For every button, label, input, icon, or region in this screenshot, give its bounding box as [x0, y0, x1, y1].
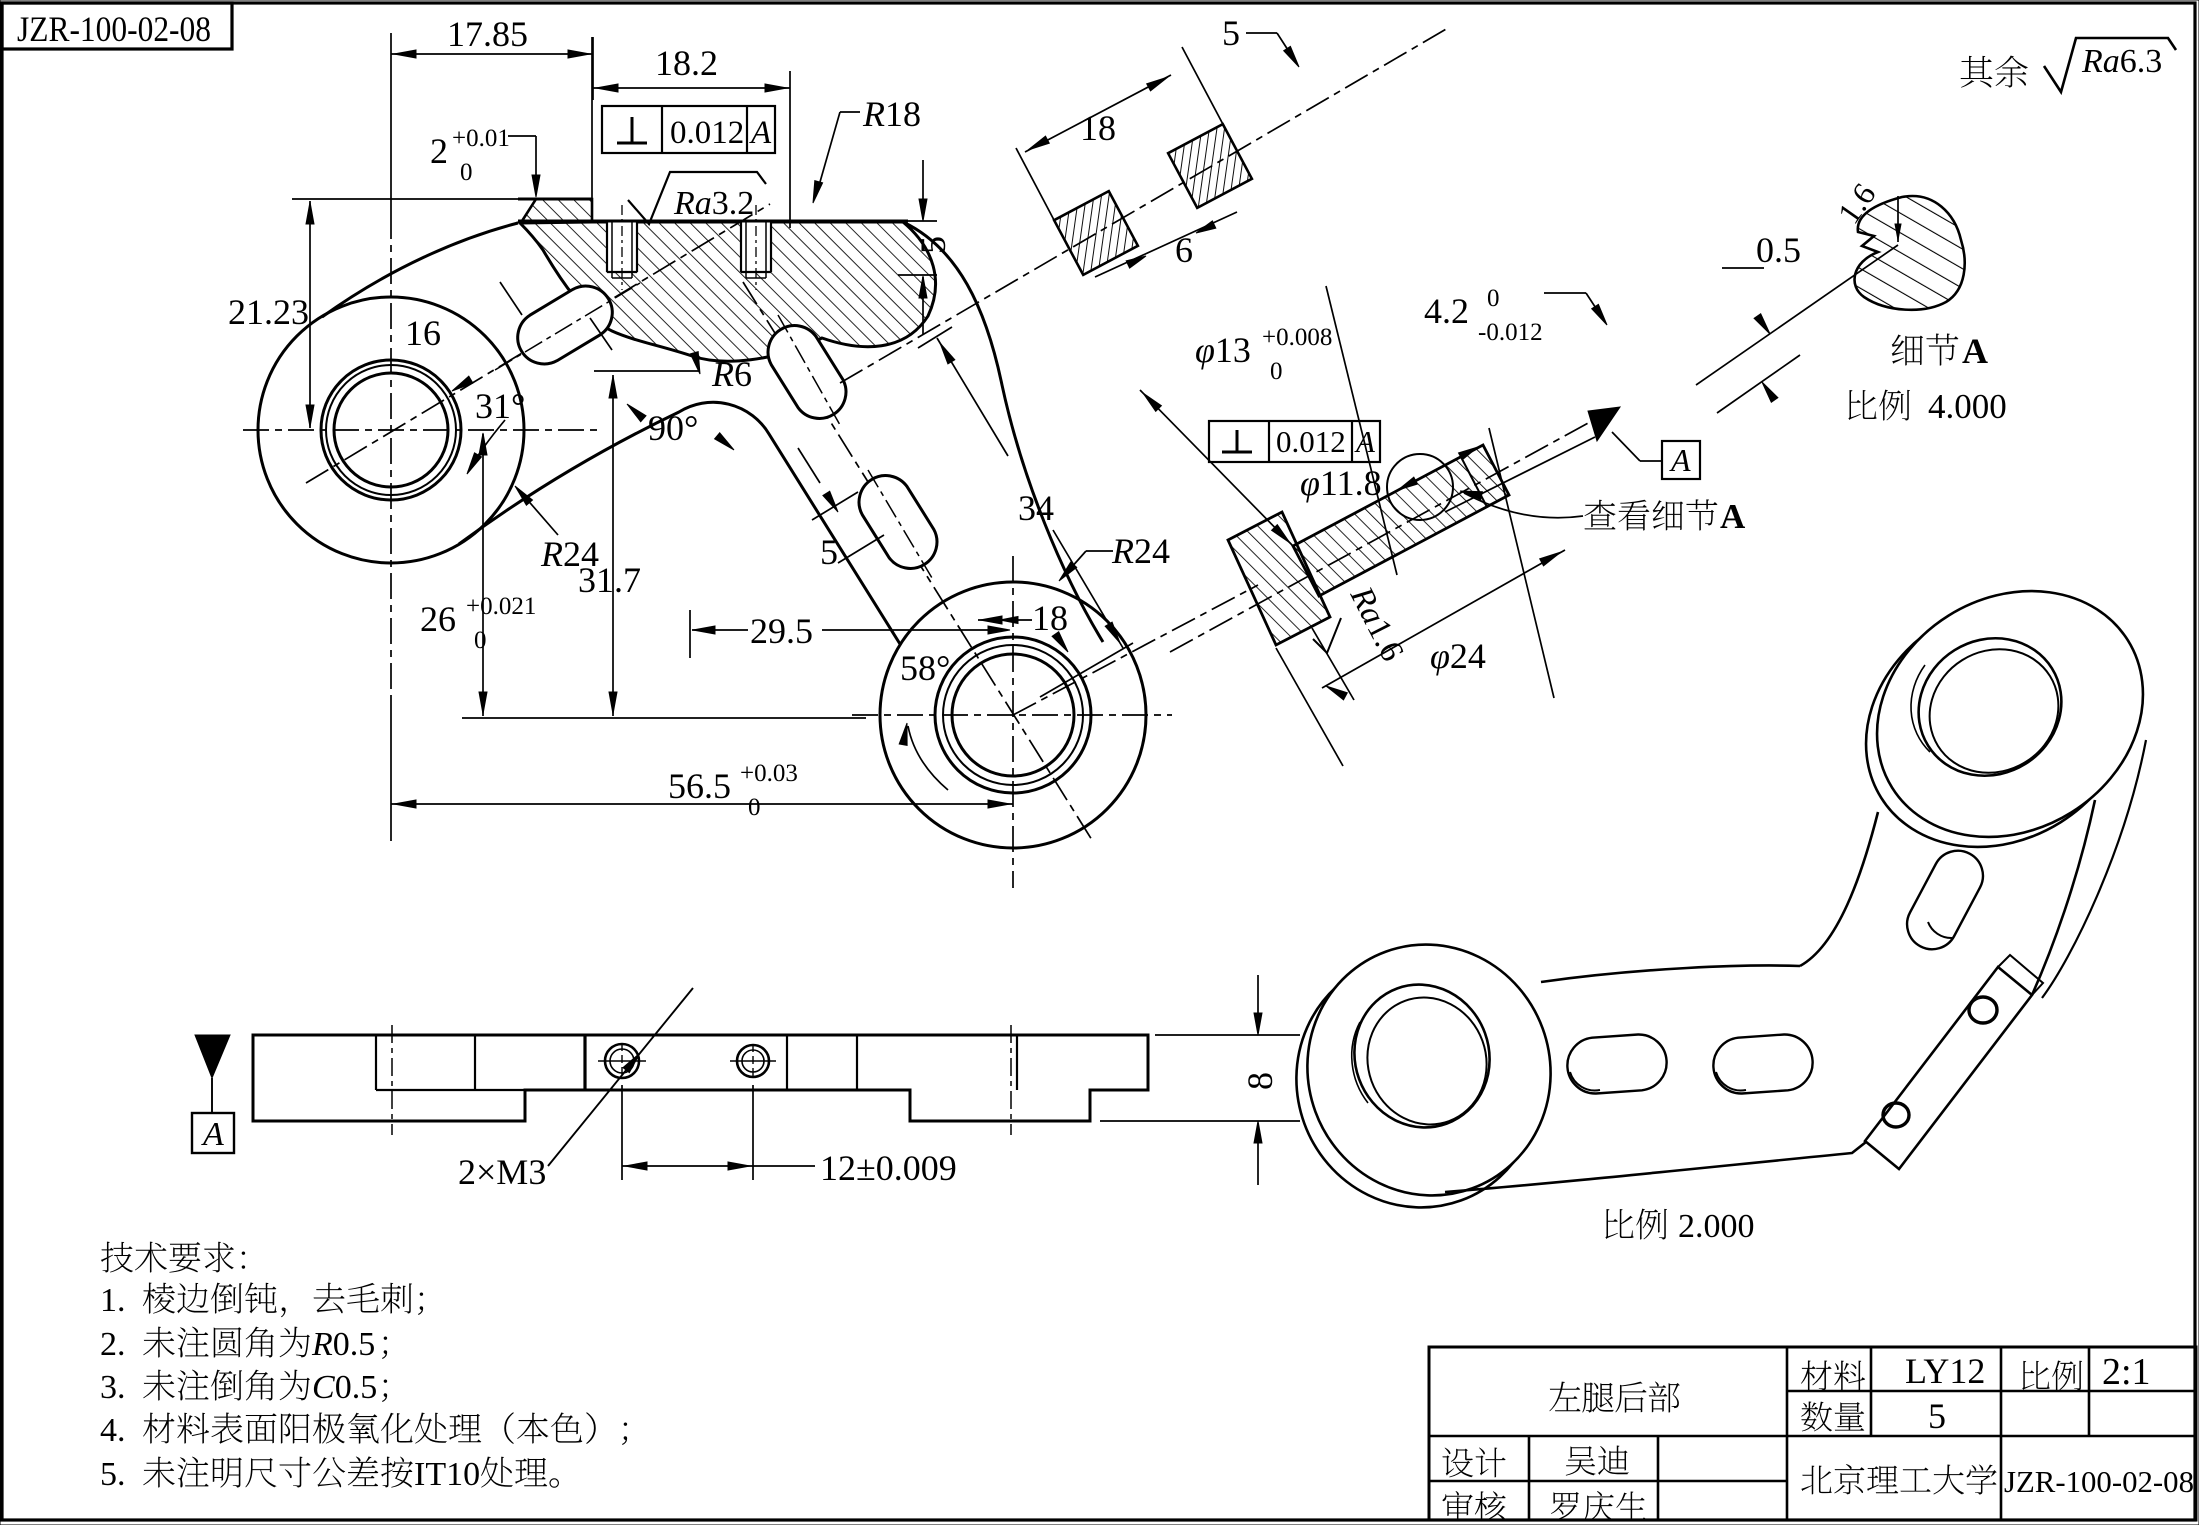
svg-text:A: A: [1720, 497, 1746, 536]
svg-text:58°: 58°: [900, 648, 950, 688]
svg-text:0: 0: [1270, 358, 1283, 385]
svg-text:2×M3: 2×M3: [458, 1152, 546, 1192]
svg-text:17.85: 17.85: [447, 14, 528, 54]
svg-text:26: 26: [420, 599, 456, 639]
svg-text:R6: R6: [711, 354, 752, 394]
svg-text:R18: R18: [862, 94, 921, 134]
svg-text:-0.012: -0.012: [1478, 319, 1543, 346]
svg-text:31°: 31°: [475, 386, 525, 426]
svg-text:+0.01: +0.01: [452, 125, 510, 152]
svg-text:JZR-100-02-08: JZR-100-02-08: [17, 9, 211, 49]
svg-text:R24: R24: [1111, 531, 1170, 571]
svg-text:5: 5: [1222, 13, 1240, 53]
svg-text:29.5: 29.5: [750, 611, 813, 651]
svg-text:21.23: 21.23: [228, 292, 309, 332]
svg-text:Ra3.2: Ra3.2: [673, 185, 754, 222]
svg-text:18.2: 18.2: [655, 43, 718, 83]
svg-text:6: 6: [1175, 230, 1193, 270]
svg-text:LY12: LY12: [1905, 1351, 1985, 1391]
svg-text:5: 5: [913, 236, 953, 254]
svg-text:R24: R24: [540, 534, 599, 574]
svg-text:+0.021: +0.021: [466, 593, 536, 620]
svg-text:5: 5: [1928, 1396, 1946, 1436]
svg-text:8: 8: [1240, 1072, 1280, 1090]
svg-text:4.: 4.: [100, 1412, 126, 1449]
svg-text:0.012: 0.012: [1276, 424, 1346, 459]
svg-text:5.: 5.: [100, 1456, 126, 1493]
svg-text:A: A: [1354, 424, 1376, 459]
svg-text:+0.008: +0.008: [1262, 324, 1332, 351]
svg-text:4.000: 4.000: [1928, 387, 2007, 426]
svg-text:0.012: 0.012: [670, 115, 744, 151]
svg-text:A: A: [1669, 442, 1691, 478]
svg-text:16: 16: [405, 313, 441, 353]
svg-text:2.000: 2.000: [1678, 1208, 1755, 1245]
svg-text:A: A: [201, 1116, 224, 1153]
svg-text:3.: 3.: [100, 1369, 126, 1406]
svg-text:φ24: φ24: [1430, 636, 1486, 676]
svg-text:4.2: 4.2: [1424, 291, 1469, 331]
svg-text:0: 0: [1487, 285, 1500, 312]
svg-text:0: 0: [748, 794, 761, 821]
svg-text:5: 5: [820, 532, 838, 572]
svg-text:2.: 2.: [100, 1326, 126, 1363]
svg-text:IT10: IT10: [414, 1456, 480, 1493]
svg-text:A: A: [1962, 331, 1988, 371]
svg-text:18: 18: [1080, 108, 1116, 148]
svg-text:2:1: 2:1: [2102, 1351, 2151, 1393]
svg-text:34: 34: [1018, 488, 1054, 528]
svg-text:2: 2: [430, 131, 448, 171]
svg-text:A: A: [749, 115, 772, 151]
svg-text:0: 0: [474, 627, 487, 654]
svg-text:90°: 90°: [648, 408, 698, 448]
svg-text:0: 0: [460, 159, 473, 186]
svg-text:Ra6.3: Ra6.3: [2081, 43, 2162, 80]
svg-text:φ11.8: φ11.8: [1300, 463, 1382, 503]
svg-text:18: 18: [1032, 598, 1068, 638]
svg-text:56.5: 56.5: [668, 766, 731, 806]
svg-text:R0.5: R0.5: [311, 1326, 375, 1363]
svg-text:φ13: φ13: [1195, 330, 1251, 370]
svg-text:0.5: 0.5: [1756, 230, 1801, 270]
svg-text:12±0.009: 12±0.009: [820, 1148, 957, 1188]
svg-text:+0.03: +0.03: [740, 760, 798, 787]
svg-text:C0.5: C0.5: [312, 1369, 377, 1406]
svg-text:JZR-100-02-08: JZR-100-02-08: [2004, 1464, 2194, 1499]
svg-text:1.: 1.: [100, 1282, 126, 1319]
